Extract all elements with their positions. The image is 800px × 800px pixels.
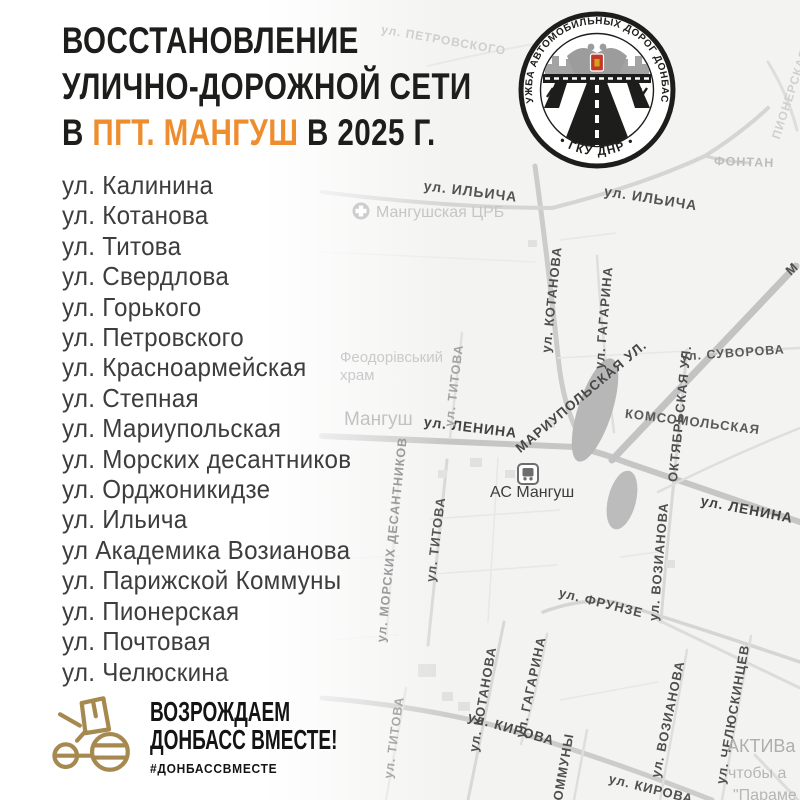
footer-slogan-line1: ВОЗРОЖДАЕМ: [150, 698, 337, 726]
map-label-titova-north: ул. ТИТОВА: [442, 344, 466, 428]
street-list-item: ул. Морских десантников: [62, 444, 351, 474]
title-town-highlight: ПГТ. МАНГУШ: [92, 112, 298, 153]
map-label-chelyuskintsev: ул. ЧЕЛЮСКИНЦЕВ: [713, 643, 752, 785]
bus-station-icon: [518, 464, 538, 484]
road-roller-icon: [46, 690, 140, 780]
footer-hashtag: #ДОНБАССВМЕСТЕ: [150, 761, 404, 776]
street-list-item: ул. Мариупольская: [62, 413, 351, 443]
street-list-item: ул. Титова: [62, 231, 351, 261]
map-label-kotanova-north: ул. КОТАНОВА: [538, 246, 564, 354]
map-label-mariupol-edge: М: [782, 259, 800, 278]
map-label-suvorova: ул. СУВОРОВА: [680, 342, 785, 363]
street-list-item: ул. Ильича: [62, 504, 351, 534]
street-list-item: ул. Красноармейская: [62, 352, 351, 382]
street-list-item: ул. Калинина: [62, 170, 351, 200]
infographic-canvas: ул. ПЕТРОВСКОГО ПИОНЕРСКАЯ ФОНТАН ул. ИЛ…: [0, 0, 800, 800]
map-label-frunze: ул. ФРУНЗЕ: [557, 585, 644, 620]
title-line-1: ВОССТАНОВЛЕНИЕ: [62, 18, 472, 64]
map-label-vozianova-south: ул. ВОЗИАНОВА: [648, 659, 687, 779]
footer-brand: ВОЗРОЖДАЕМ ДОНБАСС ВМЕСТЕ! #ДОНБАССВМЕСТ…: [46, 690, 426, 780]
map-label-gagarina-north: ул. ГАГАРИНА: [592, 266, 616, 370]
map-label-kotanova-south: ул. КОТАНОВА: [466, 645, 499, 753]
hospital-marker-icon: [353, 203, 370, 220]
footer-slogan-line2: ДОНБАСС ВМЕСТЕ!: [150, 726, 337, 754]
map-label-mariupolskaya: МАРИУПОЛЬСКАЯ УЛ.: [513, 337, 650, 455]
roads-service-emblem: СЛУЖБА АВТОМОБИЛЬНЫХ ДОРОГ ДОНБАССА • ГК…: [515, 8, 679, 172]
map-label-lenina-center: ул. ЛЕНИНА: [423, 413, 518, 440]
title-line-2: УЛИЧНО-ДОРОЖНОЙ СЕТИ: [62, 64, 472, 110]
map-edge-text-1: АКТИВа: [727, 736, 796, 756]
map-label-ilyicha-west: ул. ИЛЬИЧА: [423, 177, 518, 204]
map-label-hospital: Мангушская ЦРБ: [376, 204, 504, 221]
map-edge-text-2: чтобы а: [728, 765, 786, 782]
map-label-bus-station: АС Мангуш: [490, 484, 574, 501]
street-list-item: ул. Парижской Коммуны: [62, 565, 351, 595]
map-label-lenina-east: ул. ЛЕНИНА: [699, 492, 794, 526]
street-list-item: ул. Челюскина: [62, 657, 351, 687]
street-list-item: ул. Свердлова: [62, 261, 351, 291]
map-label-morskih-desantnikov: ул. МОРСКИХ ДЕСАНТНИКОВ: [374, 436, 409, 643]
map-label-church-line1: Феодорівський: [340, 349, 443, 366]
map-label-ilyicha-east: ул. ИЛЬИЧА: [603, 183, 699, 214]
map-label-pionerskaya: ПИОНЕРСКАЯ: [769, 47, 800, 141]
street-list-item: ул. Степная: [62, 383, 351, 413]
street-list-item: ул Академика Возианова: [62, 535, 351, 565]
footer-text: ВОЗРОЖДАЕМ ДОНБАСС ВМЕСТЕ! #ДОНБАССВМЕСТ…: [150, 690, 426, 776]
street-list-item: ул. Почтовая: [62, 626, 351, 656]
map-label-titova-center: ул. ТИТОВА: [423, 496, 448, 583]
street-list-item: ул. Котанова: [62, 200, 351, 230]
page-title: ВОССТАНОВЛЕНИЕ УЛИЧНО-ДОРОЖНОЙ СЕТИ В ПГ…: [62, 18, 574, 156]
emblem-bridge-deck: [543, 74, 651, 83]
title-line-3-suffix: В 2025 Г.: [298, 112, 435, 153]
street-list-item: ул. Пионерская: [62, 596, 351, 626]
street-list: ул. Калинина ул. Котанова ул. Титова ул.…: [62, 170, 351, 687]
map-label-town: Мангуш: [344, 409, 413, 430]
map-edge-text-3: "Параме: [733, 787, 797, 800]
map-label-fontannaya: ФОНТАН: [714, 154, 775, 170]
title-line-3-prefix: В: [62, 112, 92, 153]
title-line-3: В ПГТ. МАНГУШ В 2025 Г.: [62, 110, 472, 156]
map-label-komsomolskaya: КОМСОМОЛЬСКАЯ: [624, 406, 761, 437]
street-list-item: ул. Орджоникидзе: [62, 474, 351, 504]
street-list-item: ул. Петровского: [62, 322, 351, 352]
street-list-item: ул. Горького: [62, 292, 351, 322]
map-label-vozianova-center: ул. ВОЗИАНОВА: [646, 502, 671, 622]
